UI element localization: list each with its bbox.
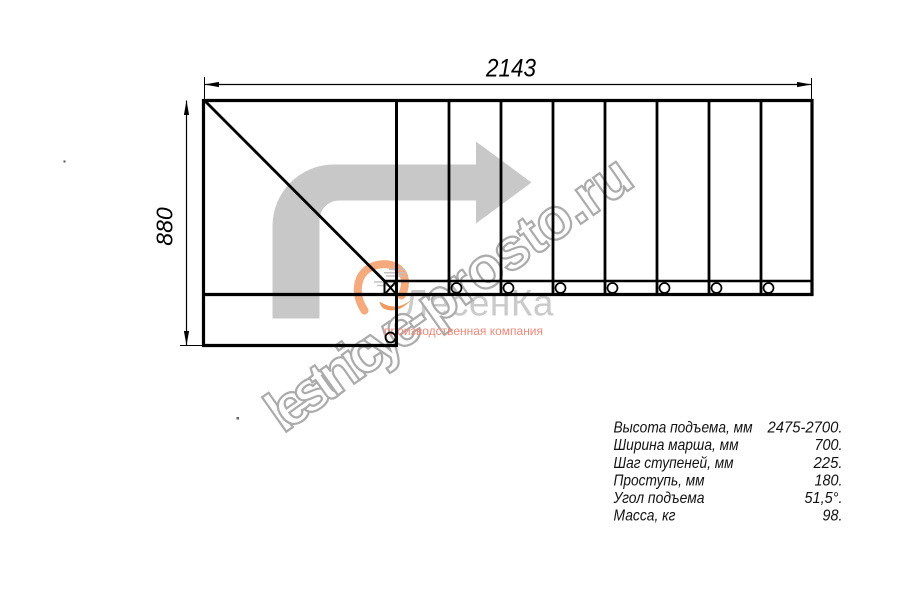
svg-text:Ширина марша, мм: Ширина марша, мм [614, 437, 739, 454]
svg-text:производственная компания: производственная компания [384, 324, 543, 338]
svg-text:225.: 225. [813, 455, 843, 472]
svg-text:51,5°.: 51,5°. [805, 490, 843, 507]
svg-text:700.: 700. [815, 437, 843, 454]
svg-text:Угол подъема: Угол подъема [613, 490, 705, 507]
svg-text:180.: 180. [815, 472, 843, 489]
svg-text:2143: 2143 [485, 55, 536, 83]
svg-text:Высота подъема, мм: Высота подъема, мм [614, 420, 753, 437]
svg-text:Проступь, мм: Проступь, мм [614, 472, 705, 489]
svg-text:98.: 98. [823, 508, 843, 525]
svg-text:880: 880 [152, 207, 178, 246]
svg-text:Масса, кг: Масса, кг [614, 508, 676, 525]
svg-text:Шаг ступеней, мм: Шаг ступеней, мм [614, 455, 734, 472]
svg-text:2475-2700.: 2475-2700. [767, 420, 843, 437]
